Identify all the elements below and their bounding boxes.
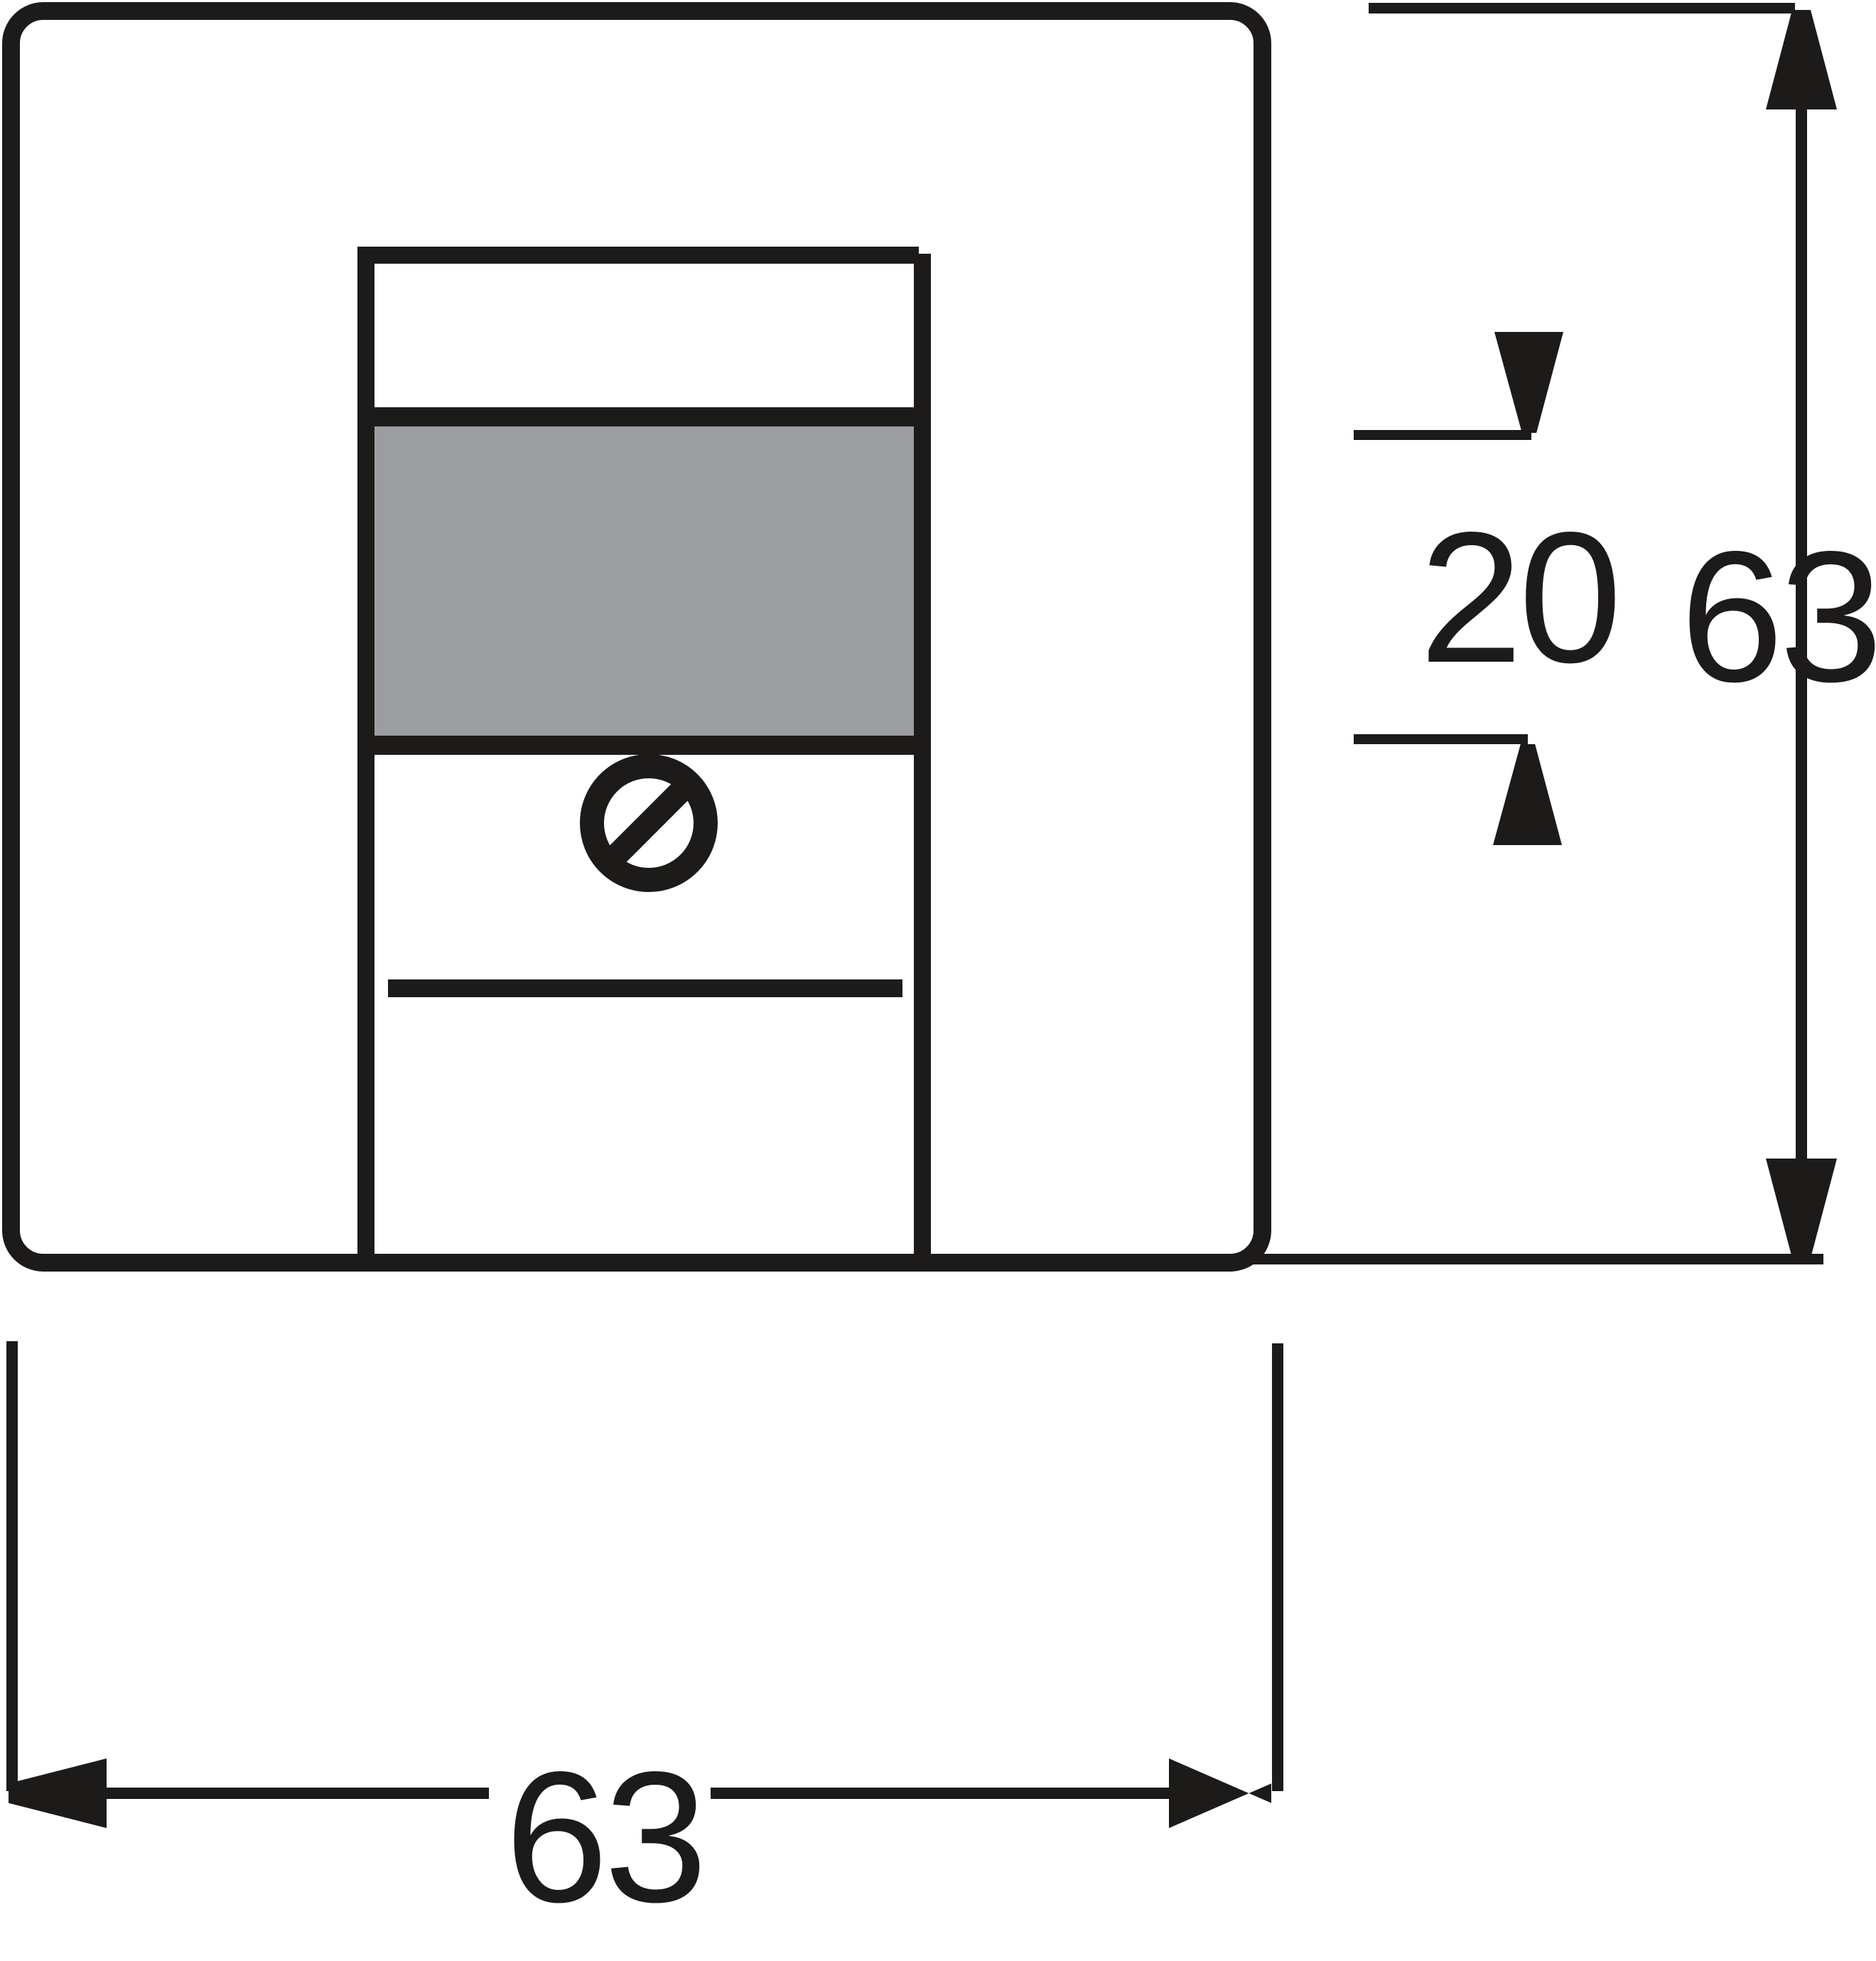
insert-left-edge — [357, 247, 374, 1264]
dimension-line-horizontal-right — [711, 1788, 1170, 1799]
field-dim-lower-mark — [1354, 734, 1528, 744]
dim-label-plate-width: 63 — [505, 1744, 703, 1930]
slotted-screw-icon — [580, 754, 718, 892]
field-dim-upper-mark — [1354, 430, 1531, 440]
insert-top-edge — [357, 247, 919, 264]
extension-line-top — [1369, 3, 1795, 14]
dim-label-plate-height: 63 — [1680, 524, 1876, 710]
arrowhead-down-icon — [1494, 332, 1563, 433]
arrowhead-left-icon — [9, 1758, 107, 1828]
extension-line-left — [6, 1341, 18, 1791]
arrowhead-up-icon — [1493, 744, 1562, 845]
arrowhead-right-icon — [1169, 1758, 1271, 1828]
insert-right-edge — [914, 254, 931, 1264]
arrowhead-down-icon — [1766, 1159, 1837, 1258]
dimension-line-horizontal-left — [105, 1788, 489, 1799]
extension-line-right — [1272, 1343, 1283, 1791]
insert-divider-line — [388, 979, 902, 997]
label-field-top-border — [357, 407, 931, 426]
label-field-bottom-border — [357, 736, 931, 755]
dim-label-field-height: 20 — [1419, 505, 1617, 691]
technical-drawing: 20 63 63 — [0, 0, 1876, 1961]
label-field — [374, 426, 914, 736]
extension-line-bottom — [1206, 1254, 1823, 1264]
arrowhead-up-icon — [1766, 10, 1837, 109]
